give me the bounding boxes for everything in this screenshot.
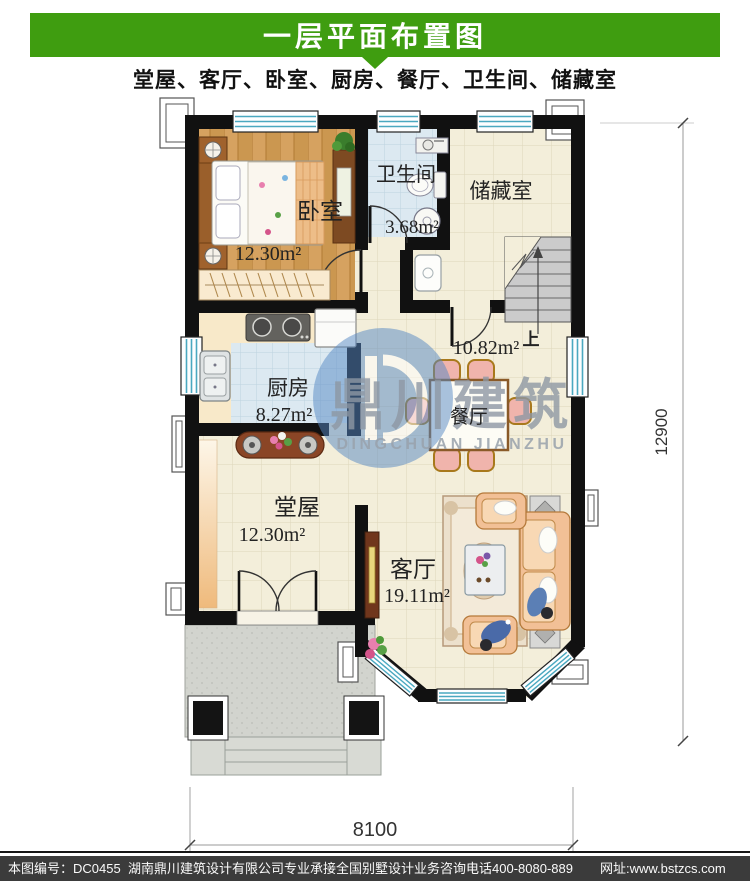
plan-number: 本图编号：DC0455 [8,856,121,881]
hall-cabinet [199,440,217,608]
living-label: 客厅 [390,557,436,582]
porch-column [344,696,384,740]
stairs-up-label: 上 [523,330,540,349]
armchair [476,493,526,529]
wall-bedroom-right-upper [355,129,368,250]
floor-plan: 鼎川建筑 DINGCHUAN JIANZHU 卧室 12.30m² 卫生间 3.… [0,0,750,881]
porch-step-right [347,737,381,775]
bathroom-label: 卫生间 [376,163,436,186]
stove [246,314,310,341]
dim-width: 8100 [353,819,398,841]
sill [172,416,186,472]
footer-bar: 本图编号：DC0455 湖南鼎川建筑设计有限公司专业承接全国别墅设计业务 咨询电… [0,856,750,881]
hall-area: 12.30m² [239,524,306,546]
kitchen-label: 厨房 [267,376,309,400]
hall-label: 堂屋 [274,495,320,520]
window-bay-bottom [437,689,507,703]
kitchen-area: 8.27m² [256,404,313,426]
porch-column [188,696,228,740]
console-table [236,432,324,458]
window-kitchen-left [181,337,202,395]
hall-furniture [236,432,324,458]
dimension-bottom: 8100 [185,787,578,852]
bathroom-area: 3.68m² [385,217,439,238]
dresser [333,150,355,243]
website-url: 网址:www.bstzcs.com [600,856,726,881]
porch-steps [225,737,347,775]
tv-cabinet [365,532,379,618]
water-heater [415,255,441,291]
window-bath-top [377,111,420,132]
wall-hall-bottom-left [185,611,237,625]
wall-storage-bottom-left [400,300,450,313]
window-bedroom-top [233,111,318,132]
dim-height: 12900 [652,408,671,455]
stairs [505,237,571,334]
wall-storage-bottom-right [490,300,507,313]
bedroom-label: 卧室 [297,199,343,224]
bedroom-area: 12.30m² [235,243,302,265]
storage-label: 储藏室 [470,179,533,203]
kitchen-sink [200,351,230,401]
wall-bath-bottom [405,237,450,250]
phone-number: 咨询电话400-8080-889 [440,856,573,881]
dining-label: 餐厅 [450,406,488,428]
watermark-en: DINGCHUAN JIANZHU [336,436,567,453]
company-name: 湖南鼎川建筑设计有限公司专业承接全国别墅设计业务 [128,856,440,881]
living-area: 19.11m² [384,585,450,607]
window-storage-top [477,111,533,132]
wardrobe [199,270,330,300]
coffee-table [465,545,505,595]
dining-area: 10.82m² [453,337,520,359]
dimension-right: 12900 [600,118,694,746]
floor-plan-poster: 一层平面布置图 堂屋、客厅、卧室、厨房、餐厅、卫生间、储藏室 [0,0,750,881]
porch-step-left [191,737,225,775]
washbasin [416,138,448,153]
footer-separator [0,851,750,853]
